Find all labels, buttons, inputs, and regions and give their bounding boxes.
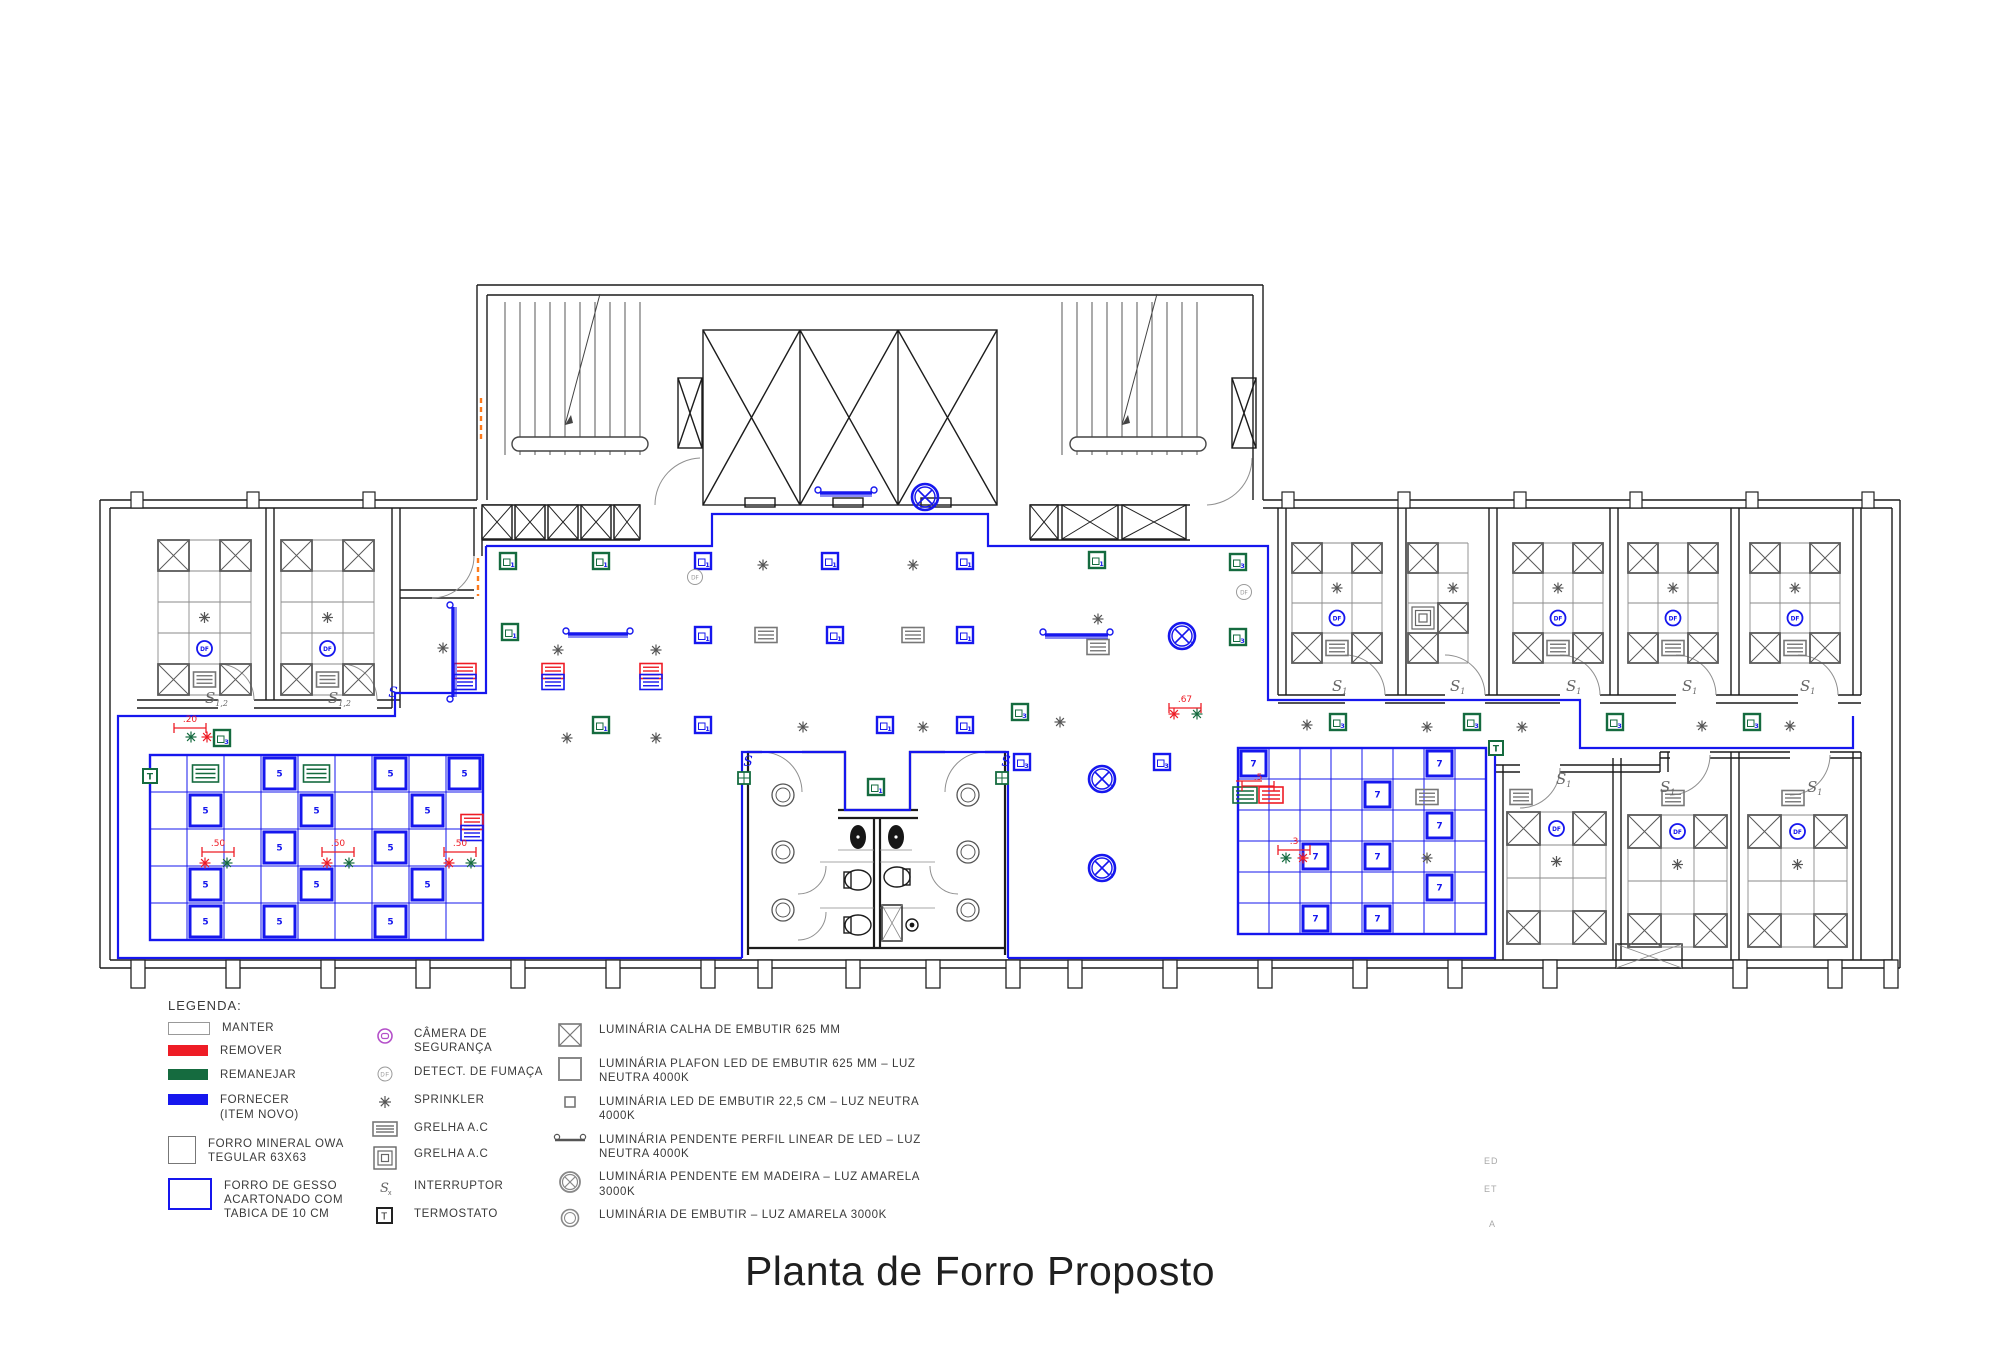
svg-text:7: 7 — [1436, 760, 1442, 770]
legend-item-label: LUMINÁRIA LED DE EMBUTIR 22,5 CM – LUZ N… — [599, 1094, 919, 1124]
pend_linear-icon — [553, 1132, 587, 1148]
interruptor-icon: Sx — [368, 1178, 402, 1198]
svg-text:7: 7 — [1374, 791, 1380, 801]
legend-item-label: FORRO DE GESSO ACARTONADO COM TABICA DE … — [224, 1178, 343, 1222]
recessed-round-light-icons — [772, 784, 979, 921]
mineral-ceiling-room: DF — [1513, 543, 1603, 663]
svg-text:1: 1 — [512, 632, 517, 640]
svg-text:DF: DF — [380, 1072, 389, 1078]
legend-item-remanejar: REMANEJAR — [168, 1067, 363, 1082]
svg-text:.50: .50 — [331, 839, 346, 849]
legend-item-label: GRELHA A.C — [414, 1146, 488, 1161]
legend-item-grelha_sq: GRELHA A.C — [368, 1146, 553, 1170]
svg-text:1: 1 — [603, 725, 608, 733]
termostato-icon: T — [368, 1206, 402, 1226]
svg-text:3: 3 — [1474, 722, 1479, 730]
svg-text:1: 1 — [967, 635, 972, 643]
fornecer-swatch — [168, 1094, 208, 1105]
svg-text:1: 1 — [967, 561, 972, 569]
svg-text:7: 7 — [1436, 822, 1442, 832]
svg-text:DF: DF — [691, 575, 699, 581]
remover-swatch — [168, 1045, 208, 1056]
mineral-ceiling-room: DF — [1748, 815, 1847, 947]
svg-text:1: 1 — [1099, 560, 1104, 568]
svg-text:DF: DF — [1791, 616, 1800, 622]
svg-text:1: 1 — [705, 725, 710, 733]
svg-text:T: T — [381, 1211, 388, 1222]
svg-text:S: S — [388, 685, 398, 701]
legend-item-termostato: TTERMOSTATO — [368, 1206, 553, 1226]
mineral-ceiling-room — [1408, 543, 1468, 663]
legend-item-interruptor: SxINTERRUPTOR — [368, 1178, 553, 1198]
svg-text:1: 1 — [967, 725, 972, 733]
mineral-ceiling-room: DF — [1750, 543, 1840, 663]
legend-item-label: LUMINÁRIA PENDENTE PERFIL LINEAR DE LED … — [599, 1132, 921, 1162]
legend-item-label: INTERRUPTOR — [414, 1178, 503, 1193]
legend-item-embutir_amarela: LUMINÁRIA DE EMBUTIR – LUZ AMARELA 3000K — [553, 1207, 1193, 1229]
grelha_sq-icon — [368, 1146, 402, 1170]
page-title: Planta de Forro Proposto — [0, 1248, 1960, 1295]
legend-item-forro_mineral: FORRO MINERAL OWA TEGULAR 63X63 — [168, 1136, 363, 1166]
gypsum-tile-grid: 777777777 — [1238, 748, 1486, 934]
svg-text:.3: .3 — [1290, 837, 1299, 847]
svg-text:DF: DF — [1669, 616, 1678, 622]
svg-text:.20: .20 — [183, 715, 198, 725]
legend-item-pend_madeira: LUMINÁRIA PENDENTE EM MADEIRA – LUZ AMAR… — [553, 1169, 1193, 1199]
smoke-detector-icons: DFDF — [688, 570, 1252, 600]
svg-text:DF: DF — [1554, 616, 1563, 622]
plafon-icon — [553, 1056, 587, 1082]
svg-text:5: 5 — [313, 807, 319, 817]
mineral-ceiling-room: DF — [158, 540, 251, 695]
svg-text:7: 7 — [1312, 915, 1318, 925]
legend-item-fornecer: FORNECER (ITEM NOVO) — [168, 1092, 363, 1122]
legend-item-label: LUMINÁRIA PENDENTE EM MADEIRA – LUZ AMAR… — [599, 1169, 920, 1199]
svg-text:T: T — [1493, 745, 1500, 755]
legend-item-label: GRELHA A.C — [414, 1120, 488, 1135]
svg-text:3: 3 — [1164, 762, 1169, 770]
mineral-ceiling-room: DF — [281, 540, 374, 695]
stray-label: ED — [1484, 1156, 1499, 1166]
mineral-ceiling-room: DF — [1292, 543, 1382, 663]
legend-item-plafon: LUMINÁRIA PLAFON LED DE EMBUTIR 625 MM –… — [553, 1056, 1193, 1086]
manter-swatch — [168, 1022, 210, 1035]
legend-item-label: FORNECER (ITEM NOVO) — [220, 1092, 299, 1122]
forro_mineral-swatch — [168, 1136, 196, 1164]
svg-text:3: 3 — [1617, 722, 1622, 730]
svg-text:7: 7 — [1436, 884, 1442, 894]
shaft-icon — [882, 905, 918, 941]
svg-text:5: 5 — [276, 918, 282, 928]
svg-text:3: 3 — [1022, 712, 1027, 720]
svg-text:1: 1 — [878, 787, 883, 795]
svg-text:2: 2 — [932, 501, 937, 509]
svg-text:1: 1 — [837, 635, 842, 643]
svg-text:S1: S1 — [1556, 770, 1571, 789]
legend-item-remover: REMOVER — [168, 1043, 363, 1058]
svg-text:.50: .50 — [211, 839, 226, 849]
svg-text:S1,2: S1,2 — [205, 689, 228, 708]
svg-text:5: 5 — [313, 881, 319, 891]
svg-text:S1: S1 — [1800, 677, 1815, 696]
gypsum-ceiling-boundary — [118, 514, 1853, 958]
svg-text:S: S — [743, 754, 753, 770]
stray-label: A — [1489, 1219, 1496, 1229]
svg-text:1: 1 — [603, 561, 608, 569]
legend-item-df: DFDETECT. DE FUMAÇA — [368, 1064, 553, 1084]
svg-text:3: 3 — [1240, 637, 1245, 645]
svg-text:5: 5 — [424, 881, 430, 891]
legend-luminaires-column: LUMINÁRIA CALHA DE EMBUTIR 625 MMLUMINÁR… — [553, 1022, 1193, 1237]
svg-text:DF: DF — [1333, 616, 1342, 622]
legend-item-grelha: GRELHA A.C — [368, 1120, 553, 1138]
svg-text:.5: .5 — [1254, 773, 1263, 783]
svg-text:5: 5 — [276, 770, 282, 780]
legend-item-label: REMOVER — [220, 1043, 282, 1058]
linear-pendant-icons — [447, 487, 1113, 702]
svg-text:3: 3 — [224, 738, 229, 746]
elevator-shafts — [678, 330, 1256, 507]
legend-item-calha: LUMINÁRIA CALHA DE EMBUTIR 625 MM — [553, 1022, 1193, 1048]
led225-icon — [553, 1094, 587, 1110]
legend-item-label: LUMINÁRIA PLAFON LED DE EMBUTIR 625 MM –… — [599, 1056, 916, 1086]
svg-text:DF: DF — [200, 647, 209, 653]
svg-text:5: 5 — [387, 844, 393, 854]
wood-pendant-icons: 2222 — [912, 484, 1195, 881]
sink-icon — [850, 825, 904, 849]
svg-text:5: 5 — [424, 807, 430, 817]
mineral-ceiling-room: DF — [1628, 543, 1718, 663]
legend-item-label: FORRO MINERAL OWA TEGULAR 63X63 — [208, 1136, 344, 1166]
stray-label: ET — [1484, 1184, 1498, 1194]
svg-text:5: 5 — [202, 881, 208, 891]
svg-text:S1: S1 — [1450, 677, 1465, 696]
svg-text:S1: S1 — [1566, 677, 1581, 696]
legend-item-manter: MANTER — [168, 1020, 363, 1035]
svg-text:S1: S1 — [1332, 677, 1347, 696]
svg-text:2: 2 — [1189, 640, 1194, 648]
svg-text:1: 1 — [510, 561, 515, 569]
legend-devices-column: CÂMERA DE SEGURANÇADFDETECT. DE FUMAÇASP… — [368, 1026, 553, 1234]
svg-text:1: 1 — [887, 725, 892, 733]
forro_gesso-swatch — [168, 1178, 212, 1210]
svg-text:T: T — [147, 773, 154, 783]
legend-item-label: LUMINÁRIA CALHA DE EMBUTIR 625 MM — [599, 1022, 841, 1037]
legend-item-pend_linear: LUMINÁRIA PENDENTE PERFIL LINEAR DE LED … — [553, 1132, 1193, 1162]
calha-icon — [553, 1022, 587, 1048]
svg-text:DF: DF — [323, 647, 332, 653]
mineral-ceiling-room: DF — [1507, 812, 1606, 944]
svg-text:5: 5 — [276, 844, 282, 854]
svg-text:7: 7 — [1312, 853, 1318, 863]
svg-text:S1: S1 — [1660, 778, 1675, 797]
svg-text:7: 7 — [1374, 853, 1380, 863]
svg-text:5: 5 — [461, 770, 467, 780]
legend-item-label: TERMOSTATO — [414, 1206, 498, 1221]
svg-text:1: 1 — [832, 561, 837, 569]
svg-text:5: 5 — [387, 918, 393, 928]
svg-text:7: 7 — [1374, 915, 1380, 925]
ceiling-plan-sheet: { "title": "Planta de Forro Proposto", "… — [0, 0, 2000, 1350]
svg-text:3: 3 — [1240, 562, 1245, 570]
svg-text:DF: DF — [1240, 590, 1248, 596]
gypsum-tile-grid: 55555555555555 — [150, 755, 483, 940]
legend-item-label: DETECT. DE FUMAÇA — [414, 1064, 543, 1079]
svg-text:S1,2: S1,2 — [328, 689, 351, 708]
camera-icon — [368, 1026, 402, 1046]
svg-text:DF: DF — [1673, 830, 1682, 836]
svg-text:5: 5 — [387, 770, 393, 780]
legend-item-label: CÂMERA DE SEGURANÇA — [414, 1026, 553, 1056]
svg-text:2: 2 — [1109, 783, 1114, 791]
svg-text:2: 2 — [1109, 872, 1114, 880]
legend-status-column: MANTERREMOVERREMANEJARFORNECER (ITEM NOV… — [168, 1020, 363, 1230]
embutir_amarela-icon — [553, 1207, 587, 1229]
sprinkler-icon — [368, 1092, 402, 1112]
svg-text:5: 5 — [202, 807, 208, 817]
legend-heading: LEGENDA: — [168, 998, 1498, 1013]
toilet-icon — [844, 867, 910, 935]
svg-text:DF: DF — [1793, 830, 1802, 836]
legend-item-label: REMANEJAR — [220, 1067, 296, 1082]
legend-item-label: SPRINKLER — [414, 1092, 485, 1107]
legend-item-forro_gesso: FORRO DE GESSO ACARTONADO COM TABICA DE … — [168, 1178, 363, 1222]
mineral-ceiling-room: DF — [1628, 815, 1727, 947]
pend_madeira-icon — [553, 1169, 587, 1195]
legend: LEGENDA: MANTERREMOVERREMANEJARFORNECER … — [168, 998, 1498, 1021]
svg-text:S1: S1 — [1682, 677, 1697, 696]
svg-text:1: 1 — [705, 635, 710, 643]
svg-text:.50: .50 — [453, 839, 468, 849]
df-icon: DF — [368, 1064, 402, 1084]
svg-text:5: 5 — [202, 918, 208, 928]
legend-item-sprinkler: SPRINKLER — [368, 1092, 553, 1112]
svg-text:1: 1 — [705, 561, 710, 569]
svg-text:S: S — [1001, 754, 1011, 770]
legend-item-label: MANTER — [222, 1020, 274, 1035]
svg-text:x: x — [388, 1190, 392, 1197]
legend-item-camera: CÂMERA DE SEGURANÇA — [368, 1026, 553, 1056]
svg-text:7: 7 — [1250, 760, 1256, 770]
stairs — [505, 294, 1206, 455]
remanejar-swatch — [168, 1069, 208, 1080]
svg-text:3: 3 — [1024, 762, 1029, 770]
svg-text:3: 3 — [1340, 722, 1345, 730]
legend-item-label: LUMINÁRIA DE EMBUTIR – LUZ AMARELA 3000K — [599, 1207, 887, 1222]
svg-text:DF: DF — [1552, 827, 1561, 833]
svg-text:3: 3 — [1754, 722, 1759, 730]
grelha-icon — [368, 1120, 402, 1138]
legend-item-led225: LUMINÁRIA LED DE EMBUTIR 22,5 CM – LUZ N… — [553, 1094, 1193, 1124]
svg-text:.67: .67 — [1178, 695, 1192, 705]
